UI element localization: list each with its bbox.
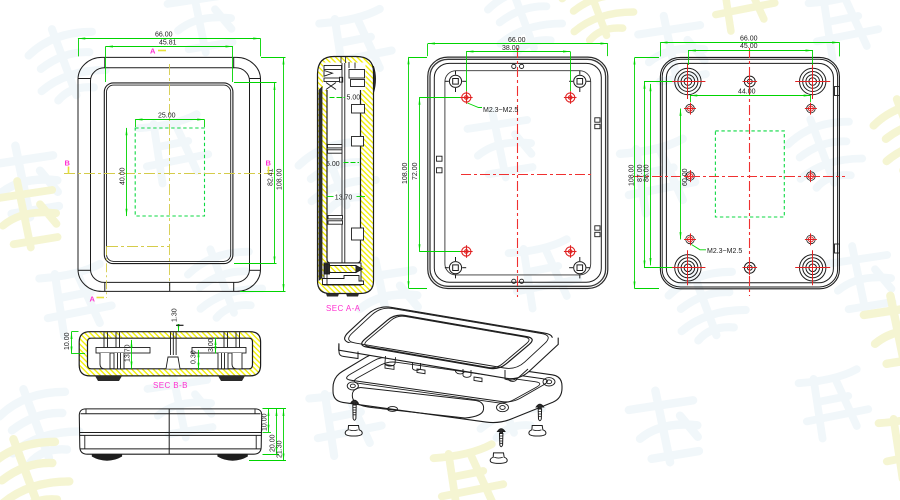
- svg-text:B: B: [266, 158, 272, 167]
- svg-text:SEC A-A: SEC A-A: [326, 304, 361, 313]
- svg-text:3.00: 3.00: [208, 338, 215, 352]
- svg-text:66.00: 66.00: [508, 37, 526, 44]
- svg-text:0.30: 0.30: [191, 350, 198, 364]
- svg-text:108.00: 108.00: [629, 164, 636, 186]
- svg-text:SEC B-B: SEC B-B: [153, 381, 188, 390]
- svg-text:66.00: 66.00: [155, 32, 173, 39]
- svg-text:5.00: 5.00: [326, 161, 340, 168]
- svg-text:86.00: 86.00: [644, 164, 651, 182]
- svg-text:72.00: 72.00: [412, 162, 419, 180]
- svg-text:10.00: 10.00: [64, 332, 71, 350]
- svg-text:A: A: [150, 47, 156, 56]
- svg-text:40.00: 40.00: [119, 167, 126, 185]
- svg-text:60.00: 60.00: [682, 168, 689, 186]
- svg-text:M2.3~M2.5: M2.3~M2.5: [707, 248, 742, 255]
- svg-text:66.00: 66.00: [740, 36, 758, 43]
- svg-text:M2.3~M2.5: M2.3~M2.5: [483, 107, 518, 114]
- svg-text:10.00: 10.00: [262, 413, 269, 431]
- svg-text:45.81: 45.81: [159, 39, 177, 46]
- svg-text:A: A: [90, 295, 96, 304]
- svg-text:44.00: 44.00: [738, 88, 756, 95]
- svg-text:25.00: 25.00: [158, 112, 176, 119]
- svg-text:13.70: 13.70: [124, 344, 131, 362]
- svg-text:108.00: 108.00: [402, 162, 409, 184]
- svg-text:B: B: [65, 158, 71, 167]
- svg-text:20.00: 20.00: [269, 434, 276, 452]
- svg-text:21.30: 21.30: [277, 440, 284, 458]
- svg-text:1.30: 1.30: [172, 308, 179, 322]
- svg-text:108.00: 108.00: [277, 168, 284, 190]
- svg-text:38.00: 38.00: [502, 45, 520, 52]
- svg-text:45.00: 45.00: [740, 43, 758, 50]
- svg-text:5.00: 5.00: [347, 94, 361, 101]
- svg-text:13.70: 13.70: [335, 195, 353, 202]
